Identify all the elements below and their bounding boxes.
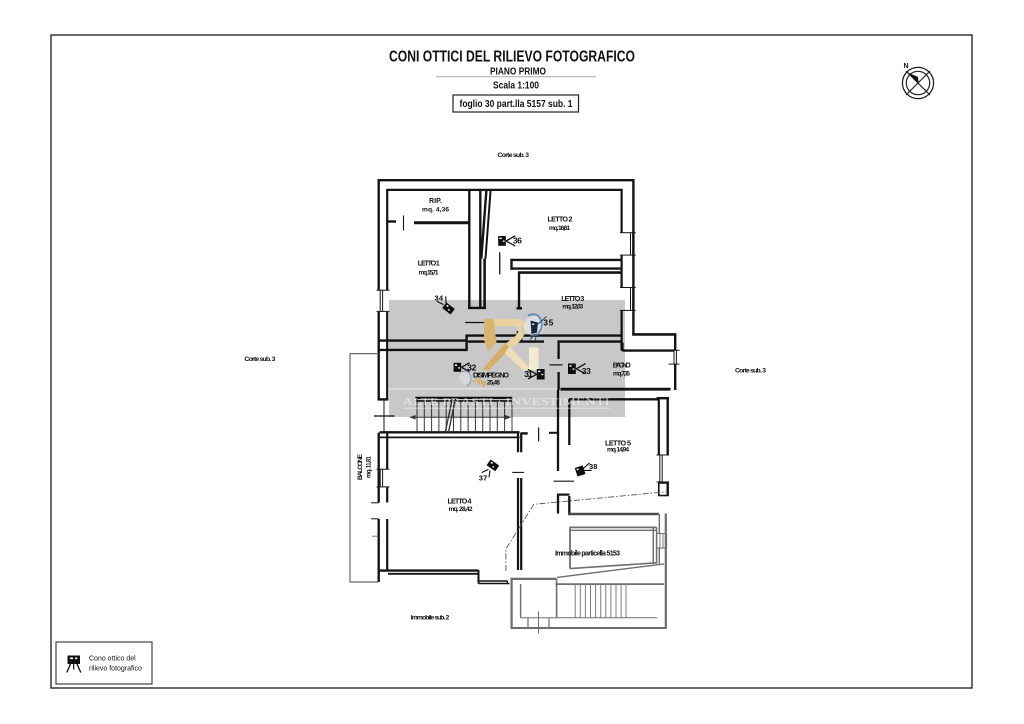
svg-text:mq. 25,48: mq. 25,48 bbox=[477, 379, 500, 386]
svg-text:mq. 11,81: mq. 11,81 bbox=[366, 455, 373, 478]
svg-text:mq. 12,03: mq. 12,03 bbox=[562, 304, 583, 311]
svg-text:mq. 4,36: mq. 4,36 bbox=[422, 207, 449, 214]
svg-text:Scala 1:100: Scala 1:100 bbox=[493, 81, 539, 92]
svg-text:Corte sub. 3: Corte sub. 3 bbox=[735, 367, 766, 374]
svg-text:36: 36 bbox=[513, 235, 522, 245]
svg-text:RIP.: RIP. bbox=[429, 198, 442, 205]
svg-text:Immobile sub. 2: Immobile sub. 2 bbox=[411, 615, 450, 622]
svg-text:34: 34 bbox=[435, 294, 444, 303]
svg-text:mq. 15,71: mq. 15,71 bbox=[419, 269, 439, 276]
svg-text:mq. 16,61: mq. 16,61 bbox=[549, 225, 570, 232]
svg-text:38: 38 bbox=[589, 462, 598, 471]
svg-text:mq. 7,35: mq. 7,35 bbox=[613, 371, 630, 378]
svg-text:CONI OTTICI DEL RILIEVO FOTOGR: CONI OTTICI DEL RILIEVO FOTOGRAFICO bbox=[389, 49, 635, 66]
svg-text:PIANO PRIMO: PIANO PRIMO bbox=[490, 67, 546, 78]
svg-text:35: 35 bbox=[543, 318, 553, 328]
svg-text:Cono ottico del: Cono ottico del bbox=[89, 656, 136, 663]
svg-text:37: 37 bbox=[479, 473, 488, 482]
svg-text:DISIMPEGNO: DISIMPEGNO bbox=[473, 370, 509, 379]
svg-text:mq. 14,94: mq. 14,94 bbox=[607, 447, 629, 454]
svg-text:foglio 30 part.lla 5157 sub. 1: foglio 30 part.lla 5157 sub. 1 bbox=[460, 99, 573, 110]
svg-text:N: N bbox=[903, 63, 908, 70]
svg-text:33: 33 bbox=[582, 366, 591, 376]
svg-text:ALTE PRASTI · INVESTIMENTI: ALTE PRASTI · INVESTIMENTI bbox=[403, 397, 611, 408]
svg-text:BAGNO: BAGNO bbox=[613, 361, 631, 370]
svg-text:BALCONE: BALCONE bbox=[357, 453, 364, 480]
svg-text:LETTO 1: LETTO 1 bbox=[418, 259, 440, 268]
svg-text:LETTO 3: LETTO 3 bbox=[561, 294, 584, 303]
svg-text:mq. 28,42: mq. 28,42 bbox=[449, 506, 473, 513]
svg-text:LETTO 4: LETTO 4 bbox=[448, 496, 472, 505]
svg-text:rilievo fotografico: rilievo fotografico bbox=[89, 666, 142, 673]
svg-text:32: 32 bbox=[467, 363, 476, 373]
svg-text:Corte sub. 3: Corte sub. 3 bbox=[498, 152, 530, 159]
svg-text:Corte sub. 3: Corte sub. 3 bbox=[244, 356, 275, 363]
svg-text:LETTO 2: LETTO 2 bbox=[548, 215, 573, 224]
svg-text:31: 31 bbox=[524, 369, 533, 379]
svg-text:Immobile particella 5153: Immobile particella 5153 bbox=[555, 551, 620, 558]
